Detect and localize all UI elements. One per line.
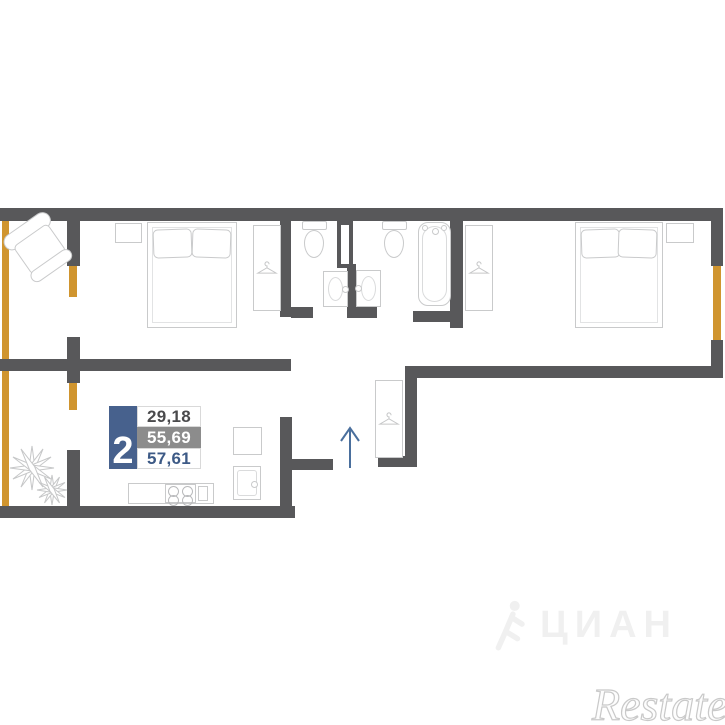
wall-bathroom1-left (280, 221, 291, 317)
area-row-total: 57,61 (137, 448, 201, 469)
ventilation-duct (337, 221, 353, 268)
wall-bathroom2-stub (413, 311, 453, 322)
plant-icon (6, 444, 72, 508)
floor-plan-canvas: 2 29,18 55,69 57,61 ЦИАН Restate (0, 0, 725, 725)
hanger-icon (378, 412, 400, 427)
wall-balcony-partition-b (67, 337, 80, 383)
room-count: 2 (112, 434, 133, 469)
washbasin (323, 271, 348, 307)
wall-entry-stub (292, 459, 333, 470)
cian-watermark: ЦИАН (492, 596, 678, 654)
window-balcony-partition-1 (69, 266, 77, 297)
wall-middle (0, 359, 291, 371)
hanger-icon (256, 261, 278, 276)
stove (165, 484, 196, 503)
area-row-living: 29,18 (137, 406, 201, 427)
nightstand (115, 223, 142, 243)
wardrobe (375, 380, 403, 458)
pillow (153, 228, 193, 258)
nightstand (666, 223, 694, 243)
arrow-up-icon (338, 424, 362, 470)
kitchen-panel (198, 486, 208, 501)
window-right-glazing (713, 266, 721, 340)
area-value: 29,18 (147, 407, 191, 427)
wall-hall-left (405, 366, 417, 467)
wardrobe (253, 225, 281, 311)
area-table: 29,18 55,69 57,61 (137, 406, 201, 469)
wall-bathroom1-stub (291, 307, 313, 318)
pillow (192, 228, 232, 258)
kitchen-sink (233, 466, 261, 500)
wall-right-upper (711, 208, 723, 266)
area-value: 57,61 (147, 449, 191, 469)
wall-bath-partition-stub (356, 307, 377, 318)
bathtub (418, 222, 451, 306)
window-balcony-partition-2 (69, 383, 77, 410)
wall-top (0, 208, 723, 221)
runner-icon (492, 596, 532, 654)
cian-watermark-text: ЦИАН (540, 604, 678, 647)
toilet (382, 221, 407, 259)
toilet (302, 221, 327, 259)
kitchen-cabinet (233, 427, 262, 455)
restate-watermark: Restate (592, 678, 725, 725)
area-value: 55,69 (147, 428, 191, 448)
bed-double (147, 222, 237, 328)
wall-hall-top (405, 366, 723, 378)
wall-kitchen-right (280, 417, 292, 518)
pillow (618, 228, 658, 258)
wardrobe (465, 225, 493, 311)
hanger-icon (468, 261, 490, 276)
area-row-usable: 55,69 (137, 427, 201, 448)
pillow (581, 228, 621, 258)
room-count-badge: 2 (109, 406, 137, 469)
washbasin (356, 270, 381, 307)
bed-double (575, 222, 663, 328)
